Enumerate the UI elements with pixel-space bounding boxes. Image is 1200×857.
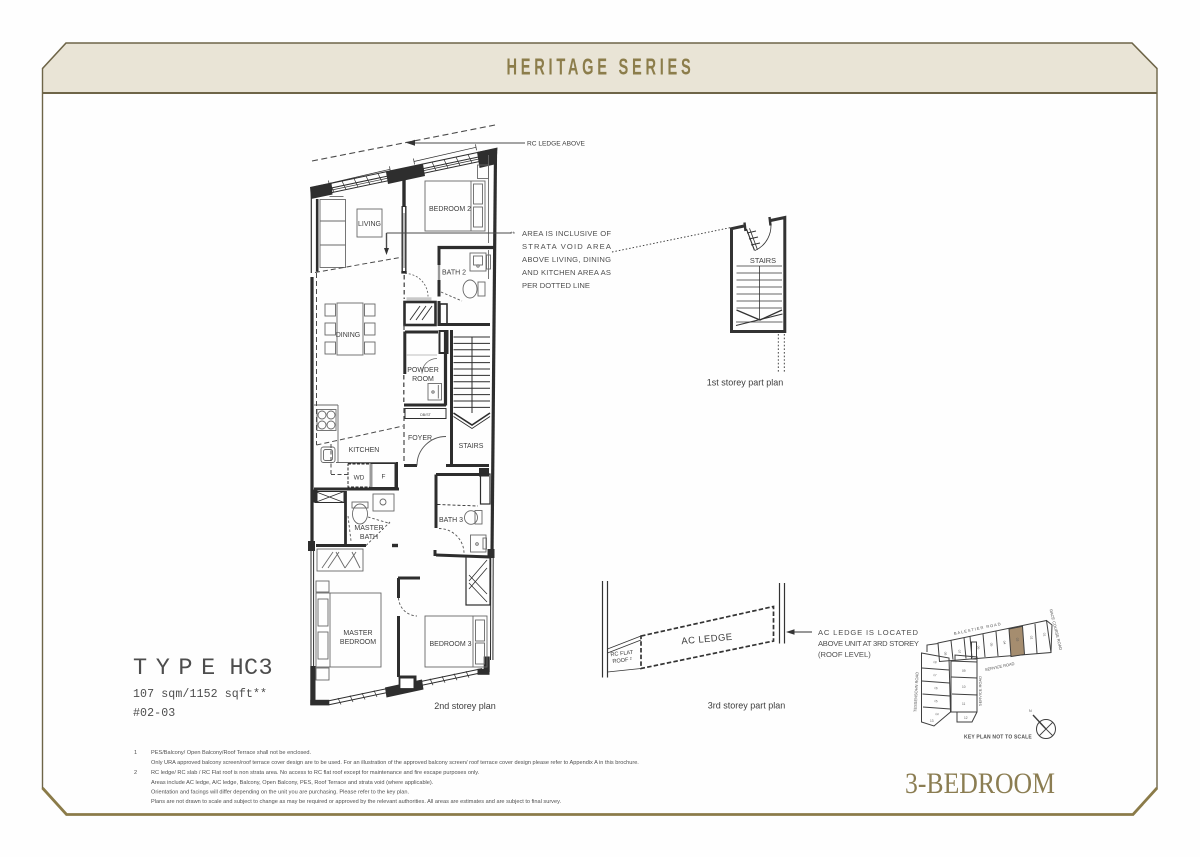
svg-text:BEDROOM 3: BEDROOM 3: [429, 641, 471, 648]
svg-text:DINING: DINING: [336, 332, 361, 339]
svg-text:01: 01: [1042, 632, 1047, 637]
svg-text:BEDROOM: BEDROOM: [340, 639, 376, 646]
svg-text:LIVING: LIVING: [358, 221, 381, 228]
svg-text:STAIRS: STAIRS: [459, 443, 484, 450]
svg-text:FOYER: FOYER: [408, 435, 432, 442]
svg-text:2nd storey plan: 2nd storey plan: [434, 701, 496, 711]
svg-text:BALESTIER ROAD: BALESTIER ROAD: [953, 621, 1002, 636]
svg-text:HERITAGE SERIES: HERITAGE SERIES: [507, 54, 695, 80]
svg-text:F: F: [382, 474, 386, 481]
svg-text:05: 05: [989, 642, 994, 647]
svg-text:STRATA VOID AREA: STRATA VOID AREA: [522, 242, 612, 251]
svg-text:WD: WD: [354, 475, 365, 482]
svg-text:1: 1: [134, 750, 137, 756]
svg-text:2: 2: [134, 770, 137, 776]
svg-text:#02-03: #02-03: [133, 707, 175, 720]
svg-text:BATH 3: BATH 3: [439, 517, 463, 524]
svg-text:ABOVE LIVING, DINING: ABOVE LIVING, DINING: [522, 255, 611, 264]
svg-text:Only URA approved balcony scre: Only URA approved balcony screen/roof te…: [151, 760, 639, 766]
svg-text:04: 04: [1002, 640, 1007, 645]
svg-text:MASTER: MASTER: [343, 630, 372, 637]
svg-text:3rd storey part plan: 3rd storey part plan: [708, 701, 786, 711]
svg-text:KEY PLAN NOT TO SCALE: KEY PLAN NOT TO SCALE: [964, 735, 1032, 741]
svg-text:12: 12: [964, 716, 968, 720]
svg-text:MASTER: MASTER: [354, 525, 383, 532]
svg-text:Plans are not drawn to scale a: Plans are not drawn to scale and subject…: [151, 799, 561, 805]
svg-text:3-BEDROOM: 3-BEDROOM: [905, 767, 1055, 800]
svg-text:AREA IS INCLUSIVE OF: AREA IS INCLUSIVE OF: [522, 229, 611, 238]
svg-text:DB/ST: DB/ST: [420, 413, 431, 417]
svg-text:07: 07: [957, 649, 962, 654]
svg-text:BEDROOM 2: BEDROOM 2: [429, 206, 471, 213]
svg-text:08: 08: [943, 651, 948, 656]
svg-text:14: 14: [935, 712, 939, 716]
svg-text:15: 15: [934, 699, 938, 703]
svg-text:SERVICE ROAD: SERVICE ROAD: [984, 661, 1015, 672]
svg-text:KITCHEN: KITCHEN: [349, 447, 380, 454]
svg-text:13: 13: [930, 719, 934, 723]
svg-text:02: 02: [1029, 635, 1034, 640]
svg-text:AC LEDGE IS LOCATED: AC LEDGE IS LOCATED: [818, 628, 919, 637]
svg-text:11: 11: [962, 702, 966, 706]
svg-text:107 sqm/1152 sqft**: 107 sqm/1152 sqft**: [133, 688, 267, 701]
svg-text:N: N: [1029, 709, 1032, 713]
svg-text:PER DOTTED LINE: PER DOTTED LINE: [522, 281, 590, 290]
svg-text:RC LEDGE ABOVE: RC LEDGE ABOVE: [527, 141, 585, 148]
svg-text:06: 06: [976, 645, 981, 650]
svg-text:TYPEHC3: TYPEHC3: [133, 655, 273, 682]
svg-text:Orientation and facings will d: Orientation and facings will differ depe…: [151, 790, 409, 796]
svg-text:BATH 2: BATH 2: [442, 270, 466, 277]
svg-text:AND KITCHEN AREA AS: AND KITCHEN AREA AS: [522, 268, 611, 277]
svg-text:ROOF ²: ROOF ²: [612, 657, 632, 665]
svg-text:TESSENSOHN ROAD: TESSENSOHN ROAD: [912, 672, 919, 713]
svg-text:(ROOF LEVEL): (ROOF LEVEL): [818, 650, 871, 659]
svg-text:SERVICE ROAD: SERVICE ROAD: [978, 676, 983, 706]
svg-text:Areas include AC ledge, A/C le: Areas include AC ledge, A/C ledge, Balco…: [151, 780, 434, 786]
svg-text:ABOVE UNIT AT 3RD STOREY: ABOVE UNIT AT 3RD STOREY: [818, 639, 919, 648]
svg-text:BATH: BATH: [360, 534, 378, 541]
svg-text:10: 10: [962, 685, 966, 689]
svg-text:PES/Balcony/ Open Balcony/Roof: PES/Balcony/ Open Balcony/Roof Terrace s…: [151, 750, 311, 756]
svg-text:RACE COURSE ROAD: RACE COURSE ROAD: [1048, 609, 1063, 651]
svg-text:AC LEDGE: AC LEDGE: [681, 632, 733, 647]
svg-text:18: 18: [933, 660, 937, 664]
svg-text:1st storey part plan: 1st storey part plan: [707, 378, 784, 388]
svg-text:16: 16: [934, 686, 938, 690]
svg-text:17: 17: [933, 673, 937, 677]
svg-text:ROOM: ROOM: [412, 376, 434, 383]
svg-text:STAIRS: STAIRS: [750, 256, 776, 265]
svg-text:POWDER: POWDER: [407, 367, 439, 374]
svg-text:**: **: [510, 231, 516, 238]
svg-text:RC ledge/ RC slab / RC Flat ro: RC ledge/ RC slab / RC Flat roof is non …: [151, 770, 480, 776]
svg-text:09: 09: [962, 669, 966, 673]
